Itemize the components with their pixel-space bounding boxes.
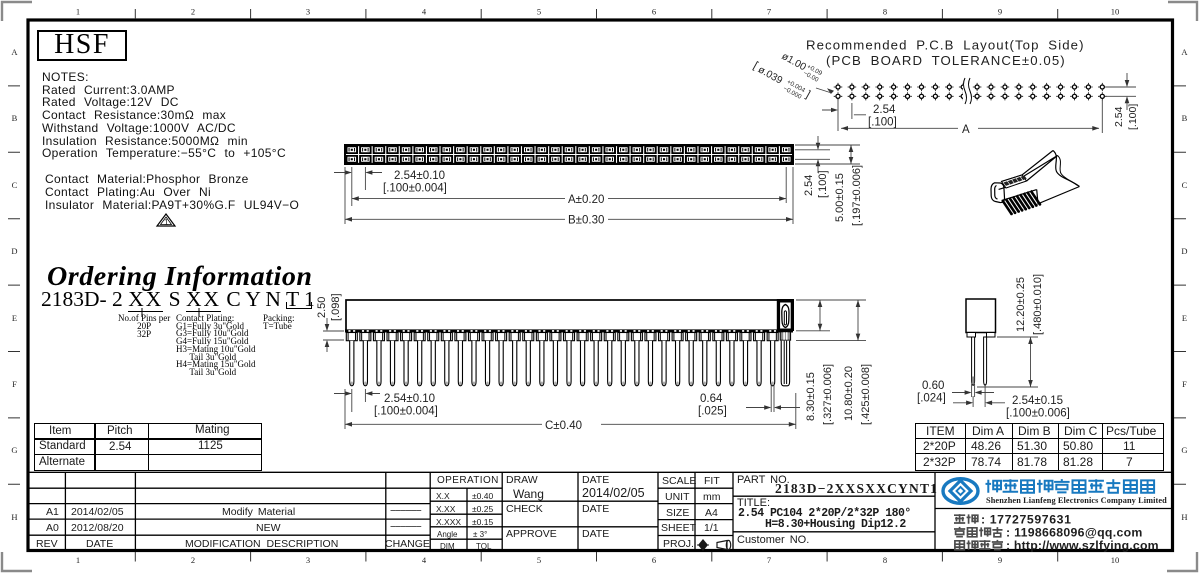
- svg-text:: 17727597631: : 17727597631: [981, 513, 1072, 527]
- svg-text:: 1198668096@qq.com: : 1198668096@qq.com: [1006, 526, 1143, 540]
- svg-text:: http://www.szlfying.com: : http://www.szlfying.com: [1006, 539, 1159, 553]
- svg-text:Shenzhen Lianfeng Electronics: Shenzhen Lianfeng Electronics Company Li…: [986, 496, 1167, 505]
